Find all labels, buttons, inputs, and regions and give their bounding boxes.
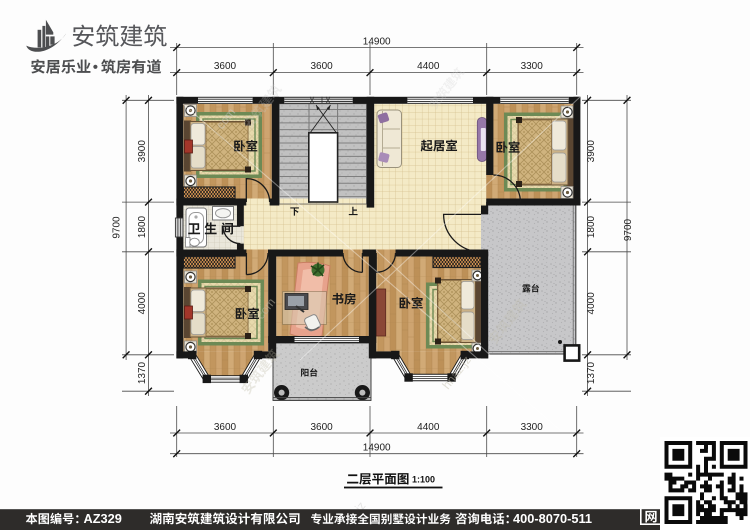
svg-text:4000: 4000 (586, 292, 597, 315)
svg-text:9700: 9700 (112, 216, 123, 239)
svg-text:1370: 1370 (586, 361, 597, 384)
svg-text:4400: 4400 (417, 61, 440, 72)
svg-text:4000: 4000 (137, 292, 148, 315)
svg-text:9700: 9700 (623, 218, 634, 241)
svg-text:14900: 14900 (363, 36, 391, 47)
svg-text:14900: 14900 (363, 443, 391, 454)
svg-text:3600: 3600 (214, 61, 237, 72)
svg-text:3900: 3900 (586, 140, 597, 163)
svg-text:400-8070-511: 400-8070-511 (513, 511, 592, 526)
svg-text:AZ329: AZ329 (84, 511, 122, 526)
svg-text:3600: 3600 (214, 422, 237, 433)
svg-text:3300: 3300 (521, 422, 544, 433)
svg-text:4400: 4400 (417, 422, 440, 433)
svg-text:3300: 3300 (521, 61, 544, 72)
svg-text:3600: 3600 (310, 422, 333, 433)
svg-text:3600: 3600 (310, 61, 333, 72)
svg-text:3900: 3900 (137, 140, 148, 163)
svg-text:1370: 1370 (137, 361, 148, 384)
svg-text:1800: 1800 (586, 215, 597, 238)
svg-text:1:100: 1:100 (412, 474, 435, 484)
svg-text:1800: 1800 (137, 215, 148, 238)
